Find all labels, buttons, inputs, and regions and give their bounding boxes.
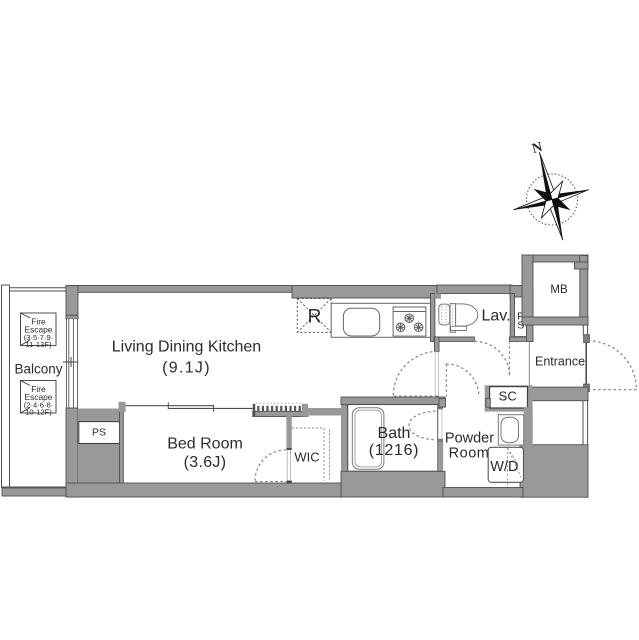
- svg-text:11·13F): 11·13F): [25, 340, 51, 349]
- svg-text:Bath: Bath: [378, 425, 411, 442]
- svg-text:W/D: W/D: [490, 459, 518, 475]
- svg-text:Lav.: Lav.: [481, 308, 510, 325]
- svg-text:SC: SC: [499, 389, 517, 404]
- svg-text:Room: Room: [449, 445, 490, 461]
- svg-text:Bed Room: Bed Room: [167, 436, 243, 453]
- svg-text:(9.1J): (9.1J): [162, 359, 211, 376]
- svg-text:Balcony: Balcony: [14, 361, 62, 376]
- svg-text:MB: MB: [550, 284, 568, 296]
- svg-text:WIC: WIC: [294, 449, 319, 464]
- svg-text:R: R: [308, 307, 322, 328]
- svg-text:(3.6J): (3.6J): [184, 454, 227, 471]
- svg-text:Entrance: Entrance: [535, 354, 585, 368]
- svg-text:PS: PS: [92, 427, 106, 439]
- svg-text:Powder: Powder: [445, 431, 494, 447]
- svg-text:Living Dining Kitchen: Living Dining Kitchen: [112, 339, 261, 356]
- svg-text:(1216): (1216): [369, 442, 419, 459]
- svg-text:10·12F): 10·12F): [25, 407, 52, 416]
